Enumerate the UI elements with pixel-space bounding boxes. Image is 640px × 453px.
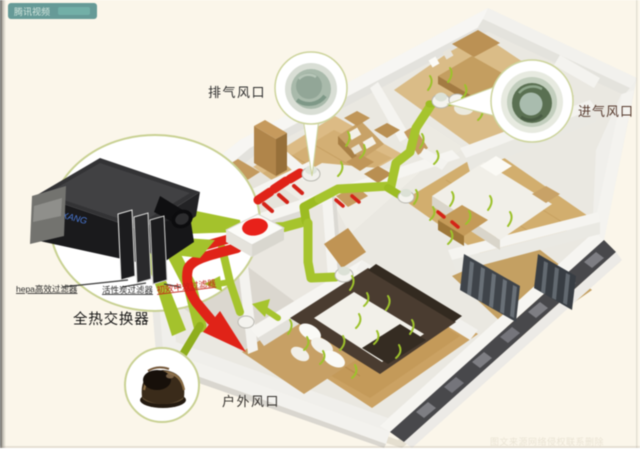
svg-text:户外风口: 户外风口: [222, 394, 280, 409]
svg-text:图文来源网络侵权联系删除: 图文来源网络侵权联系删除: [490, 436, 604, 447]
svg-text:hepa高效过滤器: hepa高效过滤器: [16, 284, 78, 294]
svg-text:进气风口: 进气风口: [578, 104, 634, 119]
svg-text:活性炭过滤器: 活性炭过滤器: [102, 285, 154, 295]
svg-text:全热交换器: 全热交换器: [73, 310, 150, 328]
svg-text:腾讯视频: 腾讯视频: [14, 6, 50, 17]
svg-text:排气风口: 排气风口: [208, 85, 266, 100]
